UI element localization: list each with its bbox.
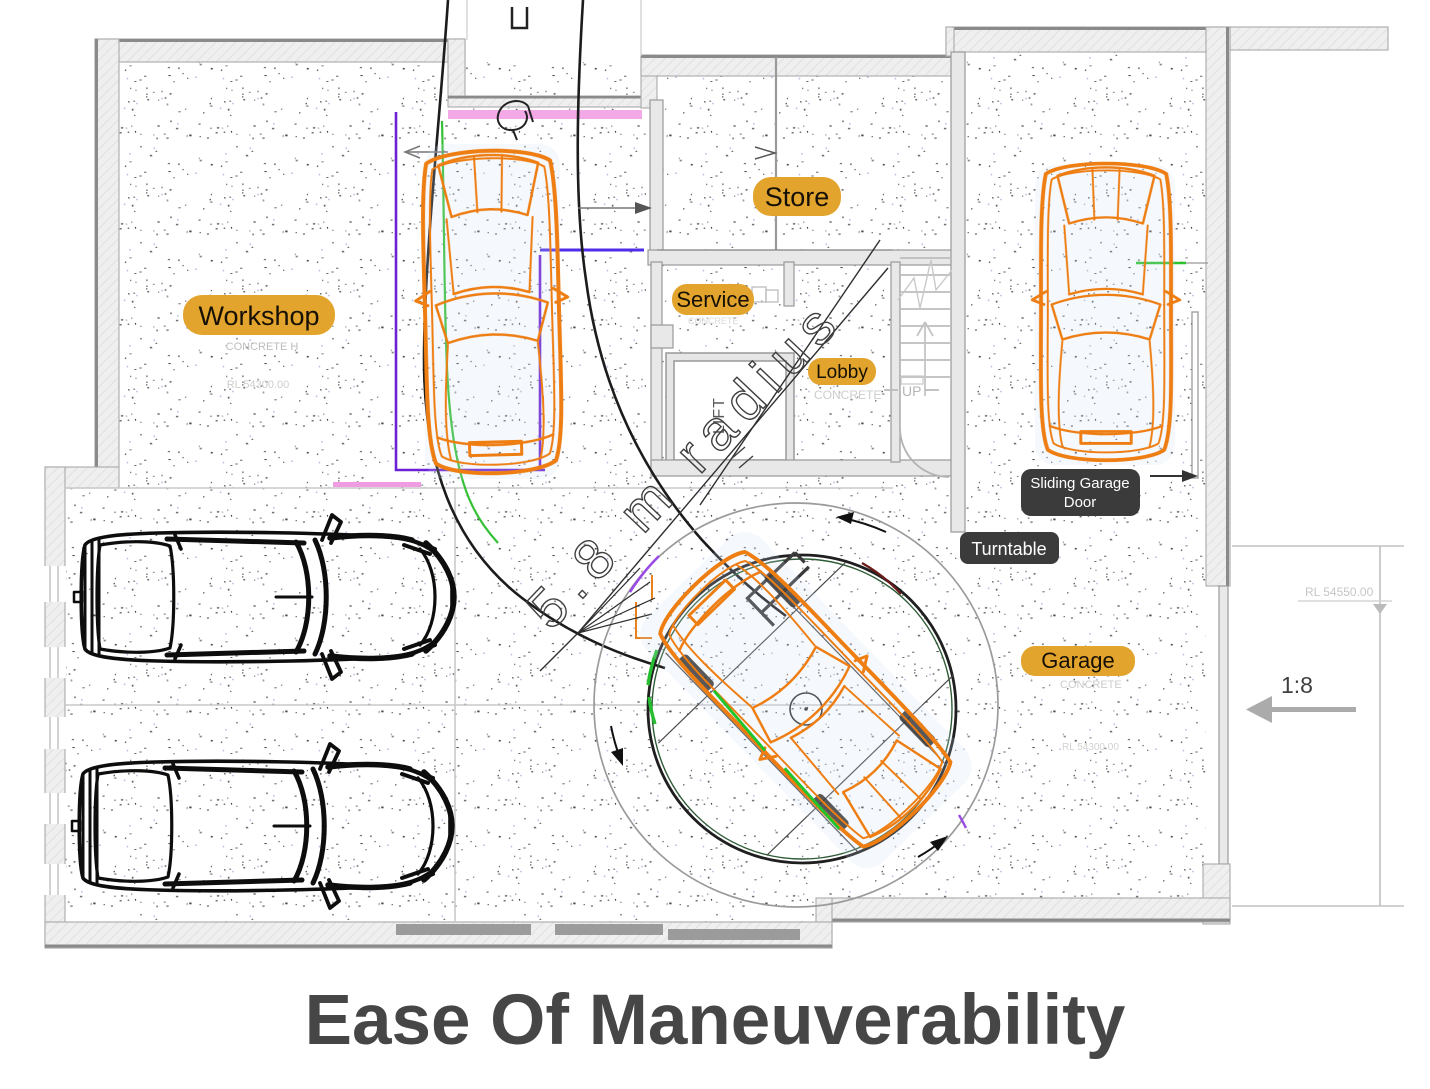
svg-text:UP: UP bbox=[902, 383, 921, 399]
svg-text:Lobby: Lobby bbox=[816, 362, 868, 383]
svg-text:CONCRETE: CONCRETE bbox=[1060, 679, 1122, 691]
svg-text:RL 54300.00: RL 54300.00 bbox=[227, 379, 290, 391]
svg-text:CONCRETE: CONCRETE bbox=[814, 388, 881, 402]
svg-text:Workshop: Workshop bbox=[198, 301, 319, 331]
svg-text:Door: Door bbox=[1064, 494, 1097, 511]
svg-text:Garage: Garage bbox=[1041, 648, 1114, 673]
svg-text:Sliding Garage: Sliding Garage bbox=[1030, 475, 1129, 492]
svg-text:Service: Service bbox=[676, 287, 749, 312]
svg-text:Store: Store bbox=[765, 182, 830, 212]
svg-text:CONCRETE H: CONCRETE H bbox=[226, 341, 299, 353]
svg-text:RL 54300.00: RL 54300.00 bbox=[1062, 742, 1119, 753]
svg-text:Ease Of Maneuverability: Ease Of Maneuverability bbox=[305, 981, 1126, 1060]
svg-text:CONCRETE: CONCRETE bbox=[688, 316, 739, 326]
svg-text:1:8: 1:8 bbox=[1281, 672, 1313, 698]
svg-text:Turntable: Turntable bbox=[971, 539, 1046, 559]
svg-text:RL 54550.00: RL 54550.00 bbox=[1305, 585, 1374, 599]
